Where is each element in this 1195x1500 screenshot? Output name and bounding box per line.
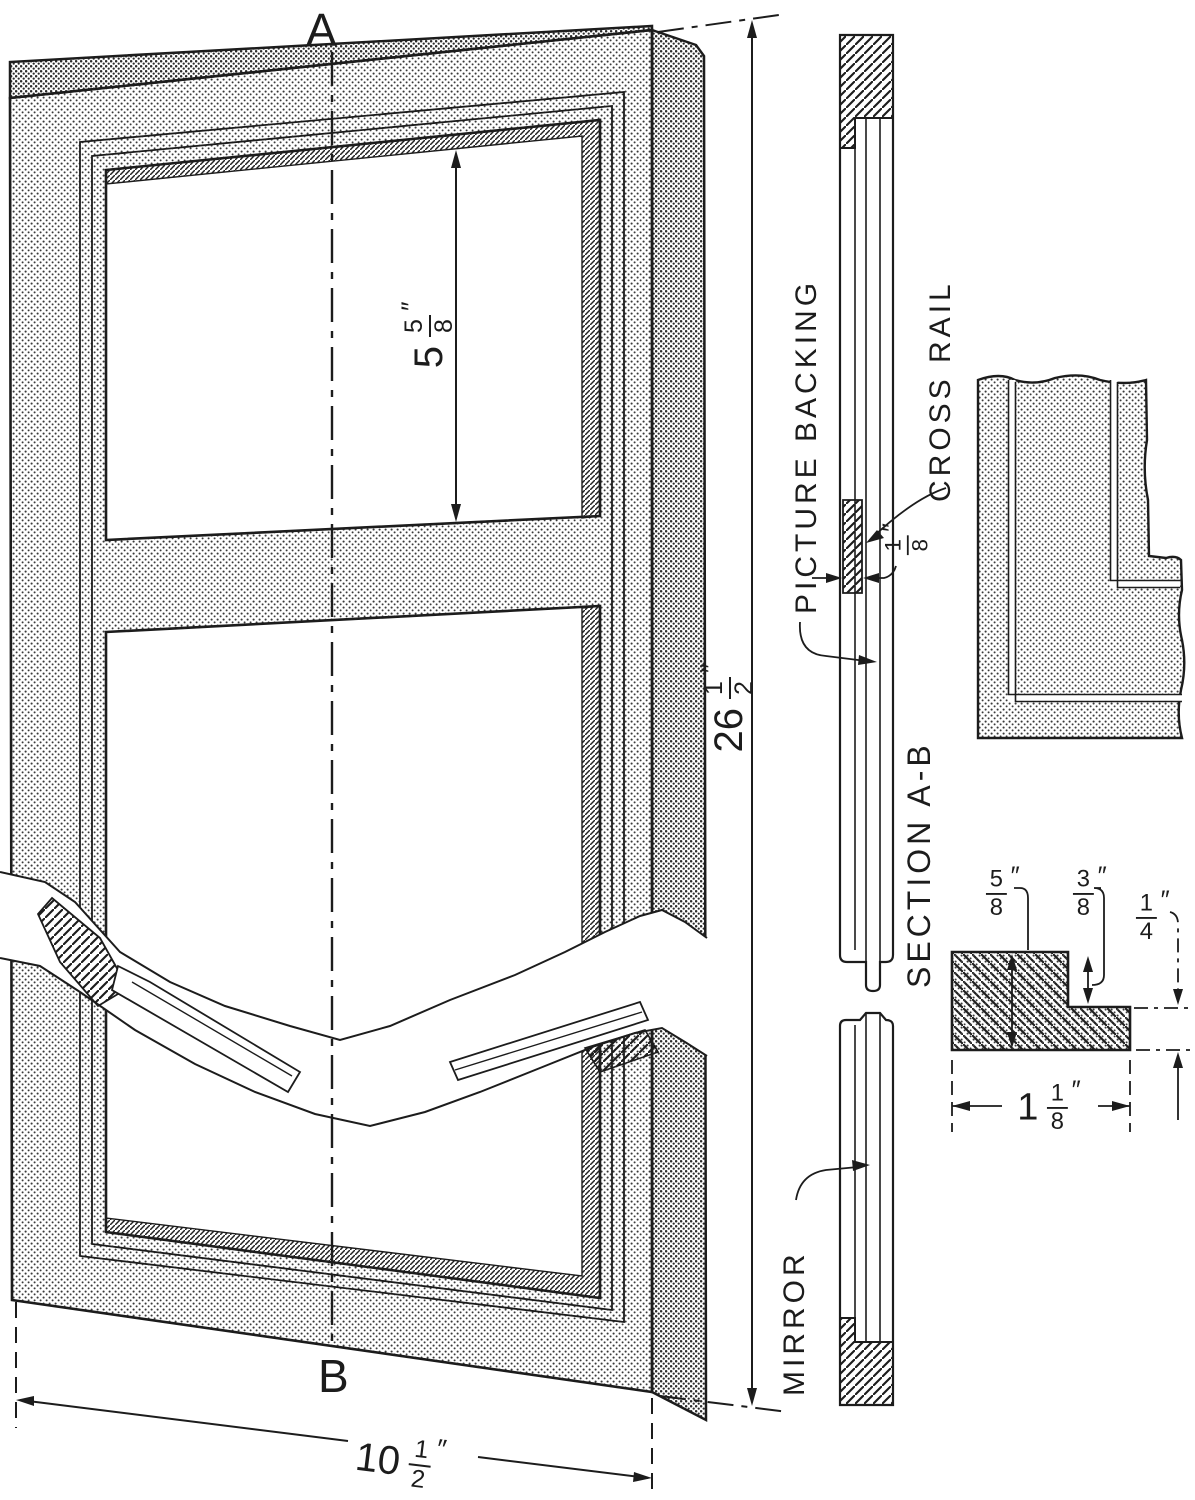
svg-text:26: 26 [707,708,751,753]
molding-profile-detail: 5 8 ″ 3 8 ″ 1 [952,862,1190,1134]
svg-text:2: 2 [409,1465,426,1494]
technical-drawing: A B 5 5 8 ″ 26 1 2 [0,0,1195,1500]
svg-text:″: ″ [696,663,726,673]
section-lower-strip [840,1013,893,1405]
svg-text:8: 8 [990,894,1003,921]
svg-text:″: ″ [878,523,905,532]
main-perspective-view: A B 5 5 8 ″ 26 1 2 [0,4,788,1496]
svg-text:1: 1 [413,1435,430,1464]
mirror-label: MIRROR [778,1250,811,1396]
dim-rabbet-width: 3 8 ″ [1073,862,1107,1004]
svg-text:2: 2 [730,681,758,695]
drawing-page: A B 5 5 8 ″ 26 1 2 [0,0,1195,1500]
lower-opening-reveal [106,606,600,1298]
upper-opening-reveal [106,120,600,518]
svg-text:″: ″ [1011,862,1020,890]
svg-text:″: ″ [435,1434,449,1465]
dim-opening-height: 5 5 8 ″ [396,150,461,522]
section-cross-rail-cut [843,500,862,593]
svg-text:3: 3 [1077,865,1090,892]
svg-text:″: ″ [1161,886,1170,914]
section-cut-label-a: A [306,4,337,56]
svg-text:8: 8 [1077,894,1090,921]
svg-text:″: ″ [396,301,426,311]
svg-text:1: 1 [1140,889,1153,916]
picture-backing-label: PICTURE BACKING [790,279,823,614]
molding-line-inner [92,106,612,1310]
svg-text:″: ″ [1072,1076,1081,1104]
svg-text:1: 1 [1017,1086,1038,1128]
section-view-title: SECTION A-B [901,741,937,988]
svg-text:8: 8 [908,539,933,552]
svg-text:1: 1 [1051,1079,1064,1106]
dim-overall-width: 1 1 8 ″ [952,1060,1130,1135]
svg-text:1: 1 [700,681,728,695]
svg-text:8: 8 [430,319,458,333]
svg-text:5: 5 [407,346,451,368]
molding-line-outer [80,92,624,1322]
svg-text:5: 5 [990,865,1003,892]
section-cut-label-b: B [318,1350,349,1402]
corner-detail-view [978,375,1184,738]
svg-text:10: 10 [353,1435,403,1484]
dim-rabbet-depth: 1 4 ″ [1134,886,1190,1120]
section-upper-strip [840,35,893,991]
svg-text:1: 1 [881,539,906,552]
cross-rail-label: CROSS RAIL [924,280,957,502]
svg-text:″: ″ [1098,862,1107,890]
svg-text:8: 8 [1051,1108,1064,1135]
section-ab-view: PICTURE BACKING CROSS RAIL 1 8 ″ SECTION… [778,35,957,1405]
svg-text:4: 4 [1140,918,1153,945]
svg-text:5: 5 [400,319,428,333]
frame-side-face [652,30,706,1420]
